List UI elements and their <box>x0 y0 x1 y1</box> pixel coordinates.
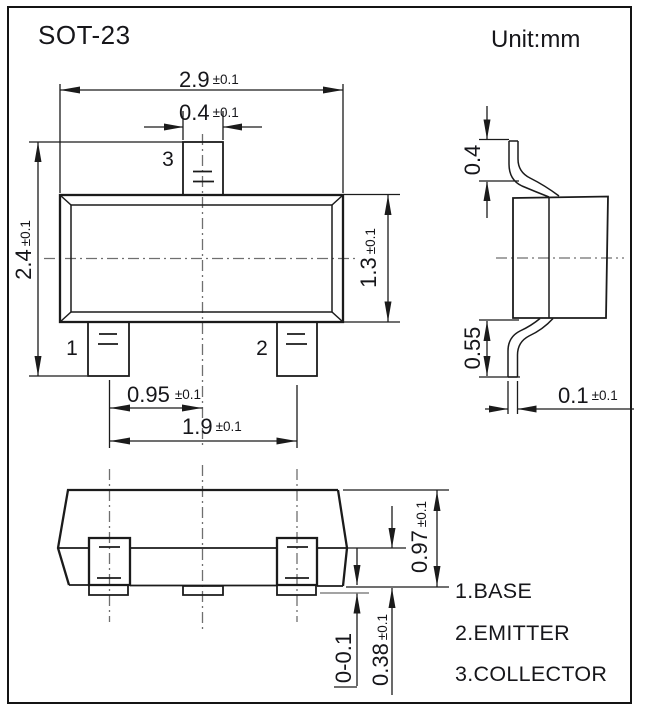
pin1-number: 1 <box>66 337 78 360</box>
dim-lead-top-0-4: 0.4 <box>460 106 519 218</box>
side-view: 0.4 0.55 0.1±0.1 <box>460 106 634 414</box>
arrowheads <box>489 406 537 413</box>
dim-text: 0.55 <box>460 327 485 370</box>
dim-text: 0.97±0.1 <box>407 501 432 573</box>
pin3-solder-marks <box>193 172 214 182</box>
front-view: 0.97±0.1 0.38±0.1 0-0.1 <box>58 465 449 695</box>
dim-body-height-1-3: 1.3±0.1 <box>343 195 400 323</box>
bottom-lead-profile <box>508 319 553 378</box>
dim-text: 0.1±0.1 <box>558 383 618 408</box>
extension-lines <box>479 140 519 182</box>
dim-text: 1.3±0.1 <box>356 228 381 288</box>
arrowheads <box>389 528 396 608</box>
top-lead-profile <box>509 141 559 197</box>
front-lead1 <box>89 538 130 595</box>
dim-lead-bottom-0-55: 0.55 <box>460 320 520 377</box>
dim-text: 0-0.1 <box>331 633 356 683</box>
legend-item-base: 1.BASE <box>455 579 532 603</box>
arrowheads <box>354 565 361 614</box>
pin1-lead-outline <box>88 322 129 376</box>
extension-lines <box>508 381 518 414</box>
extension-lines <box>479 320 520 377</box>
legend-item-emitter: 2.EMITTER <box>455 621 570 645</box>
pin1-solder-marks <box>98 334 118 344</box>
dim-body-width-2-9: 2.9±0.1 <box>60 67 343 193</box>
side-body-outline <box>513 197 608 319</box>
sot23-package-drawing: SOT-23 Unit:mm 3 1 2 2.9±0.1 <box>0 0 645 715</box>
pin2-solder-marks <box>286 334 307 344</box>
dim-text: 0.95±0.1 <box>127 382 201 407</box>
pin2-lead-outline <box>277 322 317 376</box>
top-view-pin2-lead <box>277 322 317 376</box>
dim-text: 0.38±0.1 <box>368 614 393 686</box>
drawing-title: SOT-23 <box>38 20 131 50</box>
pin2-number: 2 <box>256 337 268 360</box>
unit-label: Unit:mm <box>491 26 580 53</box>
lead1-foot <box>89 585 128 595</box>
dim-text: 0.4±0.1 <box>179 100 239 125</box>
dim-text: 2.4±0.1 <box>11 220 36 280</box>
top-view-pin1-lead <box>88 322 129 376</box>
legend-item-collector: 3.COLLECTOR <box>455 662 607 686</box>
page-border <box>8 7 631 703</box>
dim-text: 0.4 <box>460 145 485 176</box>
front-lead2 <box>277 538 317 595</box>
dim-text: 1.9±0.1 <box>182 414 242 439</box>
dim-text: 2.9±0.1 <box>179 67 239 92</box>
pin3-number: 3 <box>162 148 174 171</box>
top-view: 3 1 2 2.9±0.1 0.4±0.1 2.4±0.1 1.3±0.1 <box>11 67 400 449</box>
pin-legend: 1.BASE 2.EMITTER 3.COLLECTOR <box>455 579 607 686</box>
dim-lead-thickness-0-1: 0.1±0.1 <box>485 381 634 414</box>
